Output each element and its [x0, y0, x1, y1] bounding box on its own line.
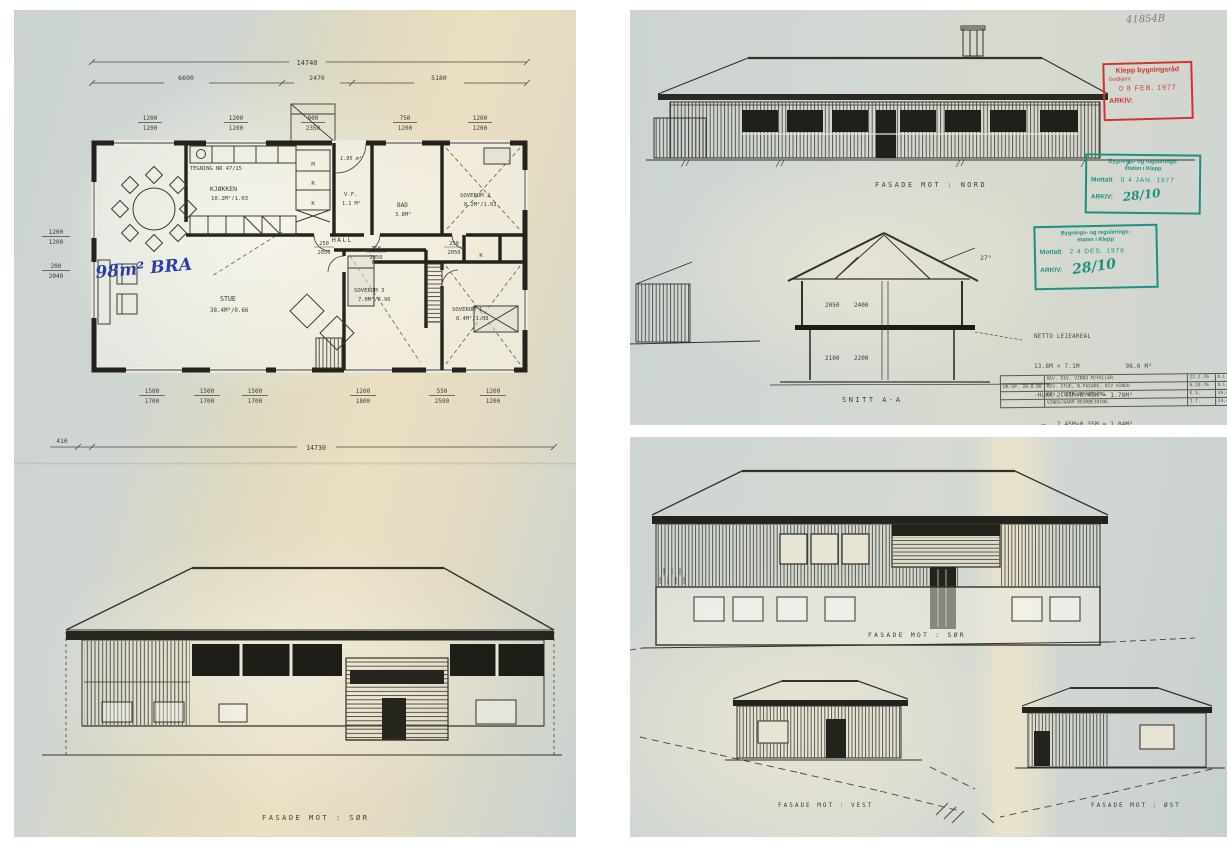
dim: 1200: [229, 125, 244, 132]
dim: 1800: [356, 398, 371, 405]
table-row: VINDU/KARM BEARBEIDING I.T. 24.4.77: [1001, 397, 1227, 408]
snitt-section: [770, 233, 1050, 385]
dim: 1200: [486, 388, 501, 395]
dim: 900: [308, 115, 319, 122]
fascia-band: [1022, 707, 1212, 713]
chimney-block: [291, 104, 335, 142]
dim: 1200: [398, 125, 413, 132]
dim: 2040: [49, 273, 64, 280]
fascia-band: [733, 700, 908, 706]
rev-cell: [1001, 399, 1045, 407]
snitt-label: SNITT A-A: [842, 396, 902, 404]
dim: 1200: [143, 125, 158, 132]
dim: 2350: [306, 125, 321, 132]
dim: 1500: [145, 388, 160, 395]
dim: 1500: [200, 388, 215, 395]
dim: 1200: [486, 398, 501, 405]
room-sov1-area: 8.4M²/1.03: [456, 315, 488, 322]
stamp-date: 0 8 FEB. 1977: [1109, 84, 1187, 95]
facade-sor-label: FASADE MOT : SØR: [868, 631, 966, 639]
dim: 1200: [143, 115, 158, 122]
arkiv-label: ARKIV:: [1040, 266, 1062, 275]
approval-stamp-red: Klepp bygningsråd Godkjent 0 8 FEB. 1977…: [1102, 61, 1193, 121]
door: [1034, 731, 1050, 766]
dim: 1500: [248, 388, 263, 395]
dim: 750: [371, 246, 381, 252]
side-wing: [654, 118, 706, 158]
entry-door: [382, 698, 406, 740]
dim: 250: [449, 241, 459, 247]
rev-cell: 19.4.77: [1215, 389, 1227, 397]
terrain-arrow-ticks: [936, 803, 994, 823]
room-sov2-area: 8.2M²/1.03: [464, 201, 496, 208]
revision-table: REV. DIV. VINDU M/FELLER 22.2.76 O.L GR.…: [1000, 373, 1227, 409]
upper-windows: [780, 534, 869, 564]
rev-cell: I.T.: [1187, 398, 1215, 406]
calc-line: — 2.45M×0.35M = 1.04M²: [1034, 420, 1227, 425]
height-upper-b: 2400: [854, 302, 869, 309]
room-vf: V.F.: [344, 192, 357, 198]
tegning-note: TEGNING NR 47/15: [190, 166, 242, 172]
handwritten-sheet-number: 41854B: [1126, 13, 1166, 25]
dimension-line-bottom: [50, 444, 557, 450]
room-sov3-area: 7.0M²/0.96: [358, 296, 390, 303]
dim: 1700: [248, 398, 263, 405]
window-band-left: [192, 644, 342, 676]
dim: 1700: [145, 398, 160, 405]
balcony-volume: [892, 525, 1000, 567]
dim: 1700: [200, 398, 215, 405]
dim: 2050: [318, 250, 331, 256]
sheet-facades-sor-vest-ost: FASADE MOT : SØR FASADE MOT : VEST: [630, 437, 1227, 837]
calc-title: NETTO LEIEAREAL: [1034, 332, 1227, 342]
dim-seg2: 2470: [309, 74, 325, 82]
window-dims-bottom: 1500 1700 1500 1700 1500 1700 1200 1800 …: [139, 388, 506, 405]
facade-sor-left: FASADE MOT : SØR: [42, 568, 562, 822]
room-hall: HALL: [332, 237, 353, 244]
calc-line: 13.8M × 7.1M 98.0 M²: [1034, 362, 1227, 372]
rev-cell: 24.4.77: [1215, 397, 1227, 405]
rev-cell: O.L: [1215, 373, 1227, 381]
facade-vest: FASADE MOT : VEST: [725, 681, 922, 809]
window: [758, 721, 788, 743]
dim: 1200: [356, 388, 371, 395]
room-kjokken-area: 10.2M²/1.03: [211, 195, 248, 202]
window: [1140, 725, 1174, 749]
partial-gable: [630, 262, 760, 344]
facades-drawing: FASADE MOT : SØR FASADE MOT : VEST: [630, 437, 1227, 837]
received-stamp-des-1976: Bygnings- og regulerings- etaten i Klepp…: [1033, 224, 1158, 291]
facade-sor: FASADE MOT : SØR: [630, 471, 1195, 650]
net-area-calculation: NETTO LEIEAREAL 13.8M × 7.1M 98.0 M² -HU…: [1034, 313, 1227, 425]
room-bad-area: 3.8M²: [395, 211, 411, 218]
height-lower-a: 2100: [825, 355, 840, 362]
room-stue-area: 38.4M²/0.66: [210, 307, 249, 314]
facade-ost-label: FASADE MOT : ØST: [1091, 802, 1181, 809]
room-kjokken: KJØKKEN: [210, 185, 237, 193]
wc-area: 1.95 m²: [340, 156, 362, 162]
height-lower-b: 2200: [854, 355, 869, 362]
dim-offset-left: 410: [56, 438, 67, 445]
fascia-band: [66, 631, 554, 640]
grass-ticks: [681, 160, 1130, 167]
stamp-org2: etaten i Klepp: [1091, 166, 1195, 174]
fascia-band: [652, 516, 1108, 524]
dim-total-bottom: 14730: [306, 444, 326, 452]
dim: 750: [400, 115, 411, 122]
dim: 1200: [473, 125, 488, 132]
rev-cell: O.L: [1215, 381, 1227, 389]
stamp-date: 2 4 DES. 1976: [1069, 247, 1124, 256]
room-vf-area: 1.1 M²: [342, 201, 361, 207]
sheet-floorplan: 14740 6690 2470 5180 1200 1200 1200 1200…: [14, 10, 576, 837]
chimney: [961, 26, 985, 56]
room-stue: STUE: [220, 295, 236, 303]
facade-nord-label: FASADE MOT : NORD: [875, 181, 987, 189]
facade-ost: FASADE MOT : ØST: [1015, 688, 1225, 809]
arkiv-number-handwritten: 28/10: [1071, 256, 1117, 280]
received-stamp-jan-1977: Bygnings- og regulerings- etaten i Klepp…: [1085, 153, 1202, 214]
window-dims-left: 1200 1200 200 2040: [42, 229, 70, 280]
dim: 250: [319, 241, 329, 247]
mottatt-label: Mottatt: [1091, 176, 1113, 184]
dim: 1200: [473, 115, 488, 122]
dim: 2050: [448, 250, 461, 256]
stamp-arkiv: ARKIV:: [1109, 96, 1187, 107]
dim: 1200: [229, 115, 244, 122]
dim: 2050: [370, 255, 383, 261]
dim-seg3: 5180: [431, 74, 447, 82]
projecting-volume: [346, 658, 448, 740]
stamp-org2: etaten i Klepp: [1040, 236, 1152, 246]
stamp-godkjent: Godkjent: [1109, 75, 1187, 84]
arkiv-number-handwritten: 28/10: [1122, 186, 1161, 205]
height-upper-a: 2050: [825, 302, 840, 309]
window-dims-top: 1200 1200 1200 1200 900 2350 750 1200 12…: [138, 115, 492, 132]
arkiv-label: ARKIV:: [1091, 193, 1113, 201]
upper-siding-right: [1000, 525, 1099, 586]
floorplan-drawing: 14740 6690 2470 5180 1200 1200 1200 1200…: [14, 10, 576, 837]
dim: 1200: [49, 229, 64, 236]
facade-sor-left-label: FASADE MOT : SØR: [262, 814, 369, 822]
facade-vest-label: FASADE MOT : VEST: [778, 802, 873, 809]
rev-cell: VINDU/KARM BEARBEIDING: [1044, 398, 1187, 407]
basement-windows: [102, 700, 516, 724]
roof-angle-label: 27°: [980, 254, 992, 262]
dim: 1200: [49, 239, 64, 246]
dim: 200: [51, 263, 62, 270]
dim: 550: [437, 388, 448, 395]
dim-seg1: 6690: [178, 74, 194, 82]
sheet-facade-nord-snitt: FASADE MOT : NORD: [630, 10, 1227, 425]
dim-total-top: 14740: [296, 59, 317, 67]
scanned-architectural-drawings: 14740 6690 2470 5180 1200 1200 1200 1200…: [0, 0, 1227, 847]
fascia-band: [658, 94, 1108, 100]
room-sov1: SOVEROM 1: [452, 307, 482, 313]
door: [826, 719, 846, 758]
room-bad: BAD: [397, 202, 408, 209]
room-sov2: SOVEROM 2: [460, 193, 490, 199]
dim: 2590: [435, 398, 450, 405]
room-sov3: SOVEROM 3: [354, 288, 384, 294]
mottatt-label: Mottatt: [1040, 248, 1062, 257]
stamp-date: 0 4 JAN. 1977: [1121, 176, 1175, 185]
